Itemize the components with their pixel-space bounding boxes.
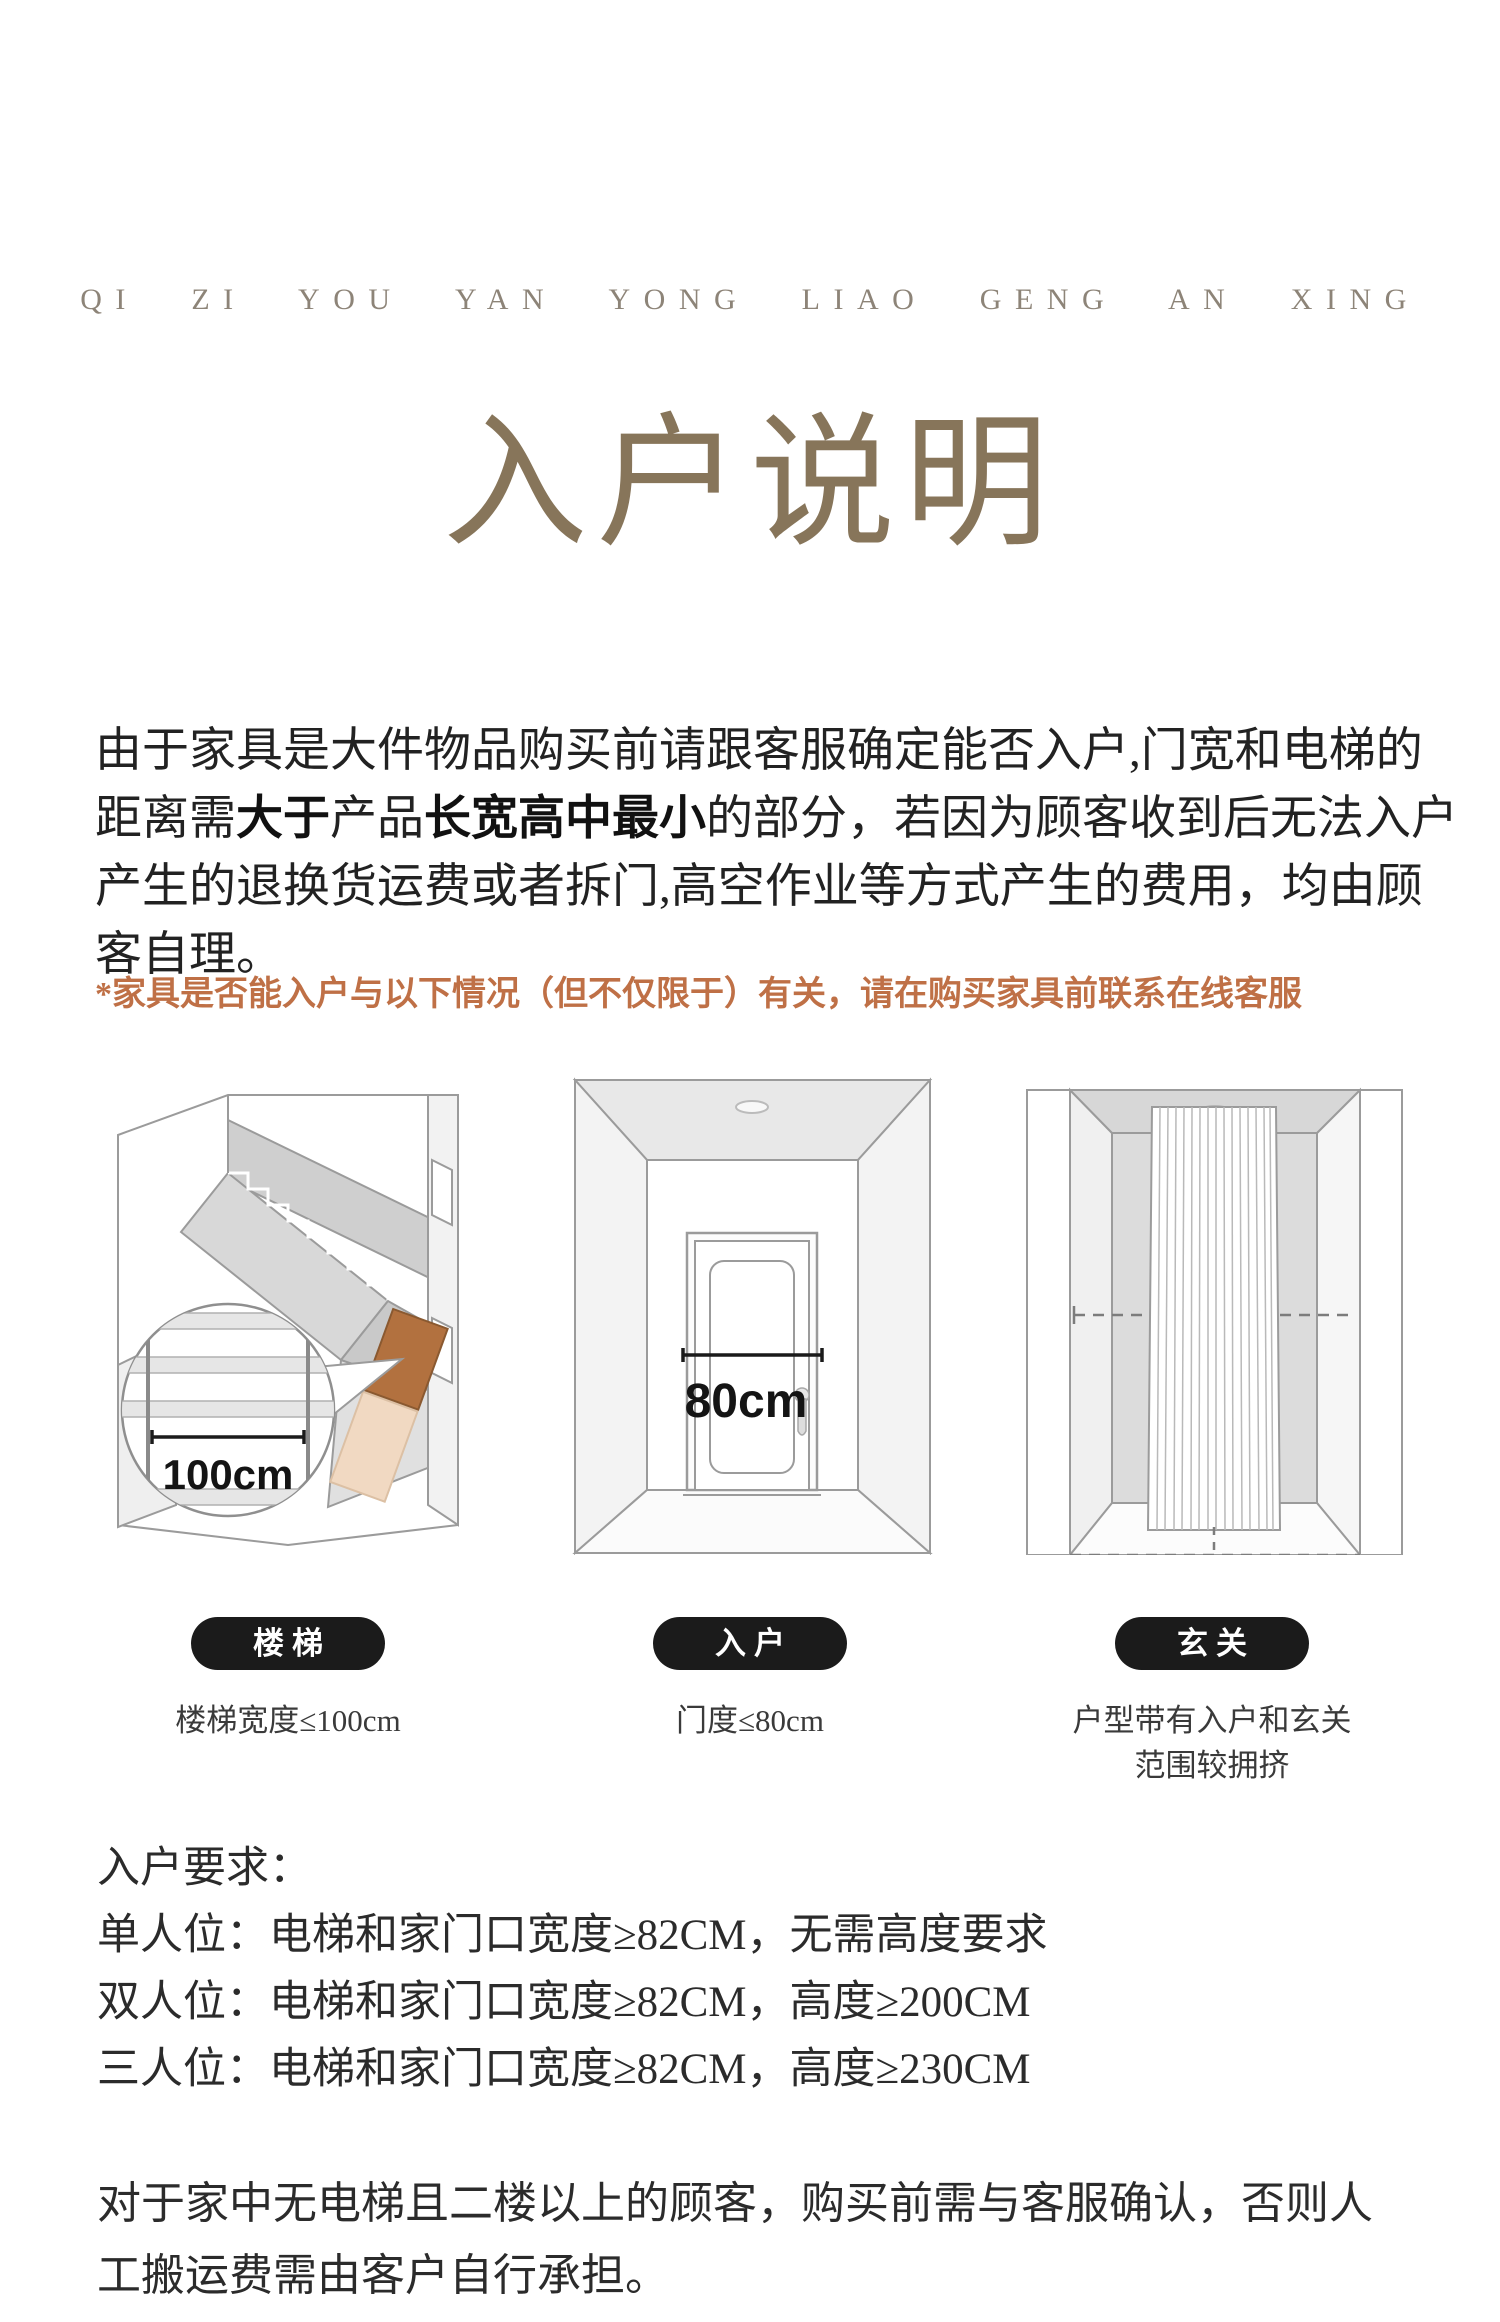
- intro-paragraph: 由于家具是大件物品购买前请跟客服确定能否入户,门宽和电梯的距离需大于产品长宽高中…: [95, 717, 1460, 989]
- stairs-caption: 楼梯宽度≤100cm: [88, 1698, 488, 1743]
- door-illustration: 80cm: [550, 1065, 950, 1555]
- intro-bold-segment: 长宽高中最小: [424, 793, 706, 845]
- entry-badge: 入户: [653, 1617, 847, 1670]
- hallway-illustration: [1012, 1065, 1412, 1555]
- door-width-label: 80cm: [685, 1375, 808, 1428]
- entry-instructions-page: QI ZI YOU YAN YONG LIAO GENG AN XING 入户说…: [0, 0, 1500, 2322]
- intro-text-segment: 产品: [330, 793, 424, 845]
- foyer-badge: 玄关: [1115, 1617, 1309, 1670]
- requirement-line-double: 双人位：电梯和家门口宽度≥82CM，高度≥200CM: [97, 1969, 1467, 2036]
- entry-caption: 门度≤80cm: [550, 1698, 950, 1743]
- stairs-badge: 楼梯: [191, 1617, 385, 1670]
- figure-entry: 80cm 入户 门度≤80cm: [550, 1065, 950, 1788]
- page-title: 入户说明: [0, 405, 1500, 565]
- delivery-note: 对于家中无电梯且二楼以上的顾客，购买前需与客服确认，否则人工搬运费需由客户自行承…: [97, 2168, 1397, 2312]
- entry-requirements: 入户要求： 单人位：电梯和家门口宽度≥82CM，无需高度要求 双人位：电梯和家门…: [97, 1835, 1467, 2103]
- requirement-line-triple: 三人位：电梯和家门口宽度≥82CM，高度≥230CM: [97, 2036, 1467, 2103]
- foyer-caption-line1: 户型带有入户和玄关: [1012, 1698, 1412, 1743]
- foyer-caption-line2: 范围较拥挤: [1012, 1743, 1412, 1788]
- magnifier-circle: 100cm: [122, 1303, 334, 1517]
- door-leaf: [683, 1233, 821, 1495]
- figures-row: 100cm 楼梯 楼梯宽度≤100cm: [88, 1065, 1412, 1788]
- curtain-screen: [1148, 1107, 1280, 1530]
- figure-stairs: 100cm 楼梯 楼梯宽度≤100cm: [88, 1065, 488, 1788]
- brand-eyebrow: QI ZI YOU YAN YONG LIAO GENG AN XING: [0, 283, 1500, 317]
- stairs-illustration: 100cm: [88, 1065, 488, 1555]
- figure-foyer: 玄关 户型带有入户和玄关 范围较拥挤: [1012, 1065, 1412, 1788]
- stairs-width-label: 100cm: [163, 1451, 294, 1498]
- foyer-caption: 户型带有入户和玄关 范围较拥挤: [1012, 1698, 1412, 1788]
- requirement-line-single: 单人位：电梯和家门口宽度≥82CM，无需高度要求: [97, 1902, 1467, 1969]
- requirements-title: 入户要求：: [97, 1835, 1467, 1902]
- service-note: *家具是否能入户与以下情况（但不仅限于）有关，请在购买家具前联系在线客服: [95, 972, 1475, 1018]
- intro-bold-segment: 大于: [236, 793, 330, 845]
